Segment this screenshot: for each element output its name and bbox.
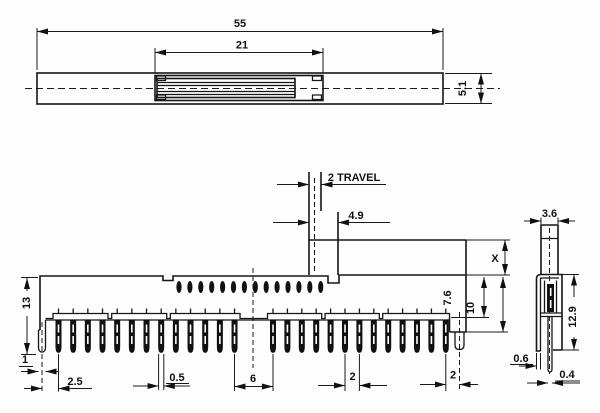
pin-highlight <box>315 325 317 333</box>
contact-dot <box>307 281 312 293</box>
pin-highlight <box>445 336 447 344</box>
side-contact-highlight <box>550 288 552 296</box>
pin-highlight <box>160 325 162 333</box>
terminal-bar-top <box>46 314 450 319</box>
contact-dot <box>285 281 290 293</box>
pin-highlight <box>287 336 289 344</box>
contact-dot <box>187 281 192 293</box>
dim-label-end: 2 <box>450 370 456 382</box>
pin-highlight <box>219 336 221 344</box>
pin-highlight <box>301 336 303 344</box>
pin-highlight <box>87 336 89 344</box>
front-view: 2 TRAVEL 4.9 13 X 7.6 10 1 2.5 <box>19 172 510 392</box>
pin-highlight <box>102 325 104 333</box>
dim-label-upper: 7.6 <box>442 290 454 305</box>
side-view: 3.6 12.9 0.6 0.4 <box>510 208 580 383</box>
pin-highlight <box>146 325 148 333</box>
pin-highlight <box>373 336 375 344</box>
contact-dot <box>176 281 181 293</box>
contact-dots <box>176 281 323 293</box>
pin-highlight <box>234 325 236 333</box>
dim-label-depth: 3.6 <box>542 208 557 220</box>
contact-dot <box>242 281 247 293</box>
dim-label-foot: 1 <box>22 354 28 366</box>
pin-highlight <box>416 336 418 344</box>
pin-highlight <box>402 336 404 344</box>
pin-highlight <box>301 325 303 333</box>
pin-highlight <box>131 325 133 333</box>
dim-label-side-height: 12.9 <box>567 306 579 327</box>
pin-highlight <box>402 325 404 333</box>
dim-label-side-pin: 0.4 <box>559 369 575 381</box>
pin-highlight <box>58 336 60 344</box>
contact-dot <box>220 281 225 293</box>
slider-corner-tabs <box>157 76 322 100</box>
contact-dot <box>198 281 203 293</box>
pin-highlight <box>330 336 332 344</box>
pin-highlight <box>102 336 104 344</box>
pin-highlight <box>146 336 148 344</box>
pin-highlight <box>272 325 274 333</box>
pin-highlight <box>272 336 274 344</box>
pin-highlight <box>204 336 206 344</box>
pin-highlight <box>344 325 346 333</box>
contact-dot <box>209 281 214 293</box>
dim-label-body-height: 5.1 <box>457 81 469 96</box>
pin-highlight <box>445 325 447 333</box>
technical-drawing: 55 21 5.1 2 TRA <box>0 0 600 413</box>
contact-dot <box>275 281 280 293</box>
pin-highlight <box>287 325 289 333</box>
pin-highlight <box>131 336 133 344</box>
dim-label-lower: 10 <box>465 302 477 314</box>
terminal-pins <box>56 309 449 353</box>
dim-label-slider-length: 21 <box>236 40 248 52</box>
dim-label-total-length: 55 <box>234 18 246 30</box>
side-contact-highlight <box>550 300 552 308</box>
contact-dot <box>231 281 236 293</box>
contact-dot <box>264 281 269 293</box>
pin-highlight <box>330 325 332 333</box>
pin-highlight <box>175 336 177 344</box>
pin-highlight <box>219 325 221 333</box>
pin-highlight <box>116 325 118 333</box>
pin-highlight <box>175 325 177 333</box>
contact-dot <box>296 281 301 293</box>
pin-highlight <box>387 336 389 344</box>
dim-label-height: 13 <box>21 297 33 309</box>
top-view: 55 21 5.1 <box>25 18 500 104</box>
pin-highlight <box>387 325 389 333</box>
pin-highlight <box>190 325 192 333</box>
dim-label-stem: 4.9 <box>348 210 363 222</box>
dim-label-pitch: 2 <box>349 371 355 383</box>
pin-highlight <box>344 336 346 344</box>
pin-highlight <box>315 336 317 344</box>
dim-label-x: X <box>491 253 499 265</box>
pin-highlight <box>234 336 236 344</box>
drawing-canvas: 55 21 5.1 2 TRA <box>0 0 600 413</box>
dim-label-travel: 2 TRAVEL <box>328 172 381 184</box>
dim-label-foot-pin: 2.5 <box>67 376 82 388</box>
pin-highlight <box>72 325 74 333</box>
pin-highlight <box>116 336 118 344</box>
pin-highlight <box>359 325 361 333</box>
pin-highlight <box>87 325 89 333</box>
pin-highlight <box>58 325 60 333</box>
pin-highlight <box>359 336 361 344</box>
pin-highlight <box>160 336 162 344</box>
pin-highlight <box>431 336 433 344</box>
dim-label-wall: 0.6 <box>513 353 528 365</box>
pin-highlight <box>431 325 433 333</box>
pin-highlight <box>373 325 375 333</box>
pin-highlight <box>190 336 192 344</box>
pin-highlight <box>416 325 418 333</box>
dim-label-pin-width: 0.5 <box>169 372 184 384</box>
contact-dot <box>318 281 323 293</box>
pin-highlight <box>72 336 74 344</box>
pin-highlight <box>204 325 206 333</box>
contact-dot <box>253 281 258 293</box>
dim-label-gap: 6 <box>250 373 256 385</box>
